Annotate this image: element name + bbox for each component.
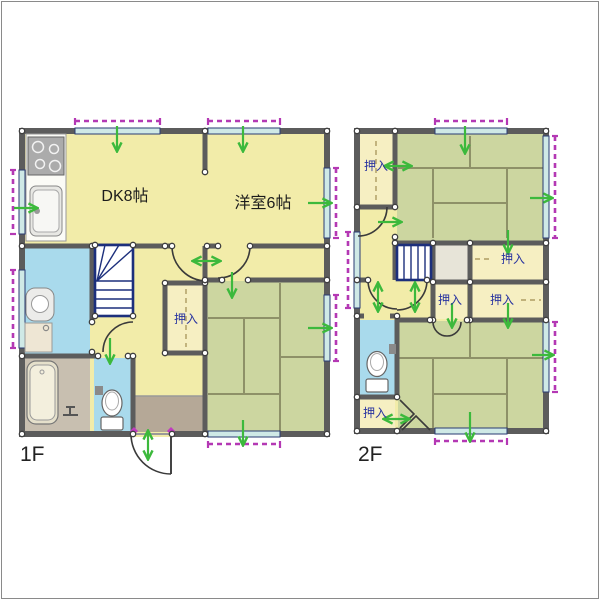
western-room-label: 洋室6帖 xyxy=(235,194,292,212)
floorplan-canvas: DK8帖 洋室6帖 押入 1F xyxy=(0,0,600,600)
floorplan-svg: DK8帖 洋室6帖 押入 1F xyxy=(0,0,600,600)
bathtub-icon xyxy=(27,361,58,424)
toilet2-paper-holder-icon xyxy=(389,344,396,354)
floor2-label: 2F xyxy=(358,443,383,466)
f2-window-north-right xyxy=(543,136,549,238)
f1-kitchen xyxy=(26,134,66,241)
toilet-bowl-icon xyxy=(102,390,122,416)
f1-entrance-tataki xyxy=(135,396,203,432)
f2-closet-topleft-label: 押入 xyxy=(364,159,388,173)
f2-window-south-right xyxy=(543,322,549,392)
f2-window-hall-left xyxy=(354,232,360,308)
toilet2-bowl-icon xyxy=(367,352,387,377)
f2-landing-floor xyxy=(434,245,469,281)
f2-window-north-top xyxy=(435,128,507,134)
f2-closet-row2-right-label: 押入 xyxy=(490,293,514,307)
f2-stairs xyxy=(397,245,431,280)
floor-2f: 押入 押入 押入 押入 押入 2F xyxy=(345,118,558,466)
washbasin-icon xyxy=(26,288,54,321)
toilet2-tank xyxy=(366,379,388,392)
kitchen-sink-icon xyxy=(30,186,62,236)
f1-window-washroom-left xyxy=(19,270,25,348)
f1-window-kitchen-left xyxy=(19,170,25,234)
f2-closet-mid-label: 押入 xyxy=(501,252,525,266)
toilet-paper-holder-icon xyxy=(95,386,103,395)
f2-closet-bottomleft-label: 押入 xyxy=(363,406,387,420)
stove-icon xyxy=(28,137,64,175)
f1-stairs xyxy=(95,245,133,316)
toilet-tank xyxy=(101,417,123,430)
dk-room-label: DK8帖 xyxy=(101,187,148,205)
f2-closet-row2-left-label: 押入 xyxy=(438,293,462,307)
washing-machine-icon xyxy=(25,323,52,352)
f1-closet-label: 押入 xyxy=(174,312,198,326)
floor-1f: DK8帖 洋室6帖 押入 1F xyxy=(10,118,339,474)
floor1-label: 1F xyxy=(20,443,45,466)
